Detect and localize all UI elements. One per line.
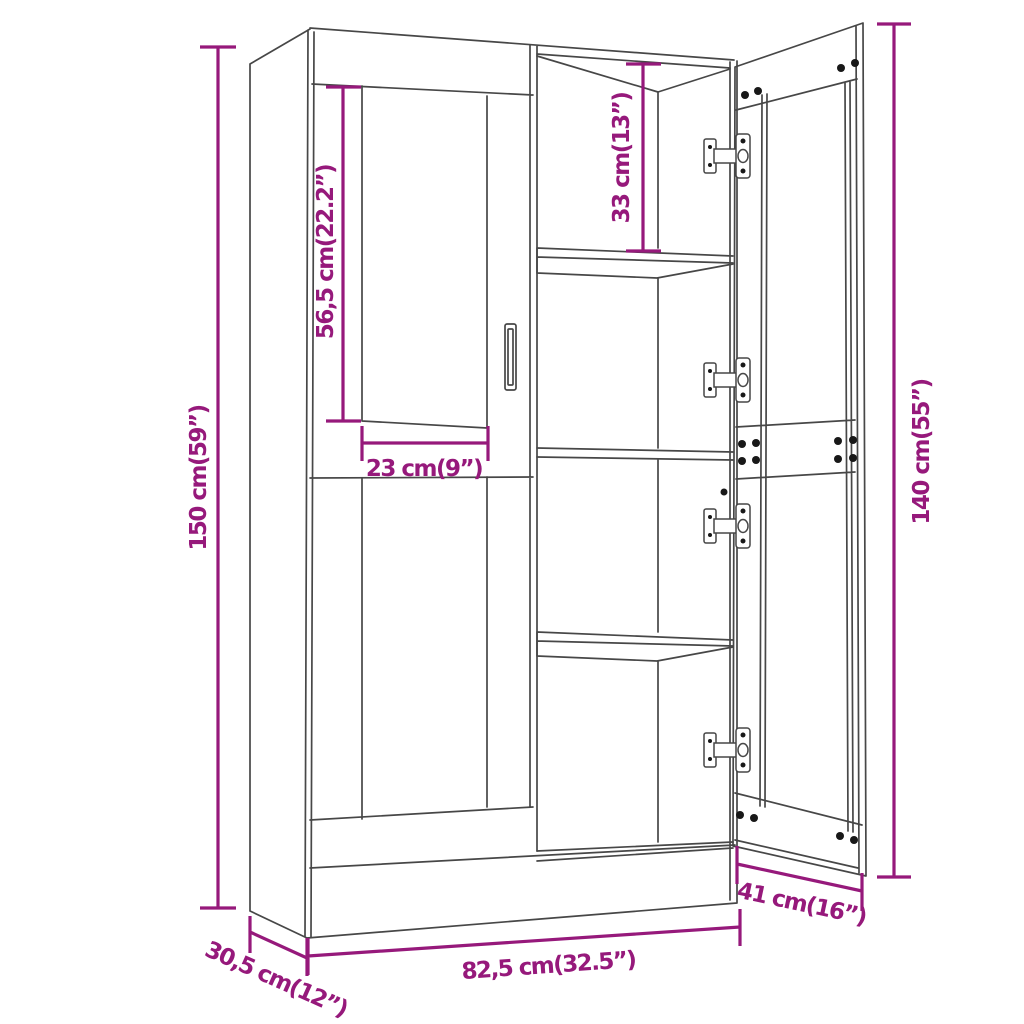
cabinet-body xyxy=(250,28,737,938)
shelf-bottom xyxy=(537,632,733,661)
door-handle xyxy=(505,324,516,390)
mid-rail xyxy=(537,448,733,460)
dimension-label: 33 cm(13”) xyxy=(609,93,635,224)
hinge-icon xyxy=(704,358,750,402)
left-side-panel xyxy=(250,29,314,938)
open-door xyxy=(733,23,866,876)
cabinet-cam-screw xyxy=(721,489,728,496)
dimension-label: 150 cm(59”) xyxy=(186,405,212,550)
cabinet-dimension-drawing: 150 cm(59”) 56,5 cm(22.2”) 33 cm(13”) 23… xyxy=(0,0,1024,1024)
interior-ceiling xyxy=(537,54,730,92)
dimension-label: 140 cm(55”) xyxy=(909,379,935,524)
open-door-frame xyxy=(735,79,862,832)
dimension-label: 30,5 cm(12”) xyxy=(201,937,351,1023)
dimension-door-width: 41 cm(16”) xyxy=(735,846,868,930)
left-door-frame xyxy=(362,86,487,819)
dimension-glass-panel-width: 23 cm(9”) xyxy=(362,426,488,482)
diagram-canvas: 150 cm(59”) 56,5 cm(22.2”) 33 cm(13”) 23… xyxy=(0,0,1024,1024)
dimensions: 150 cm(59”) 56,5 cm(22.2”) 33 cm(13”) 23… xyxy=(186,24,935,1022)
dimension-total-height: 150 cm(59”) xyxy=(186,47,236,908)
interior-floor xyxy=(537,842,733,861)
dimension-total-depth: 30,5 cm(12”) xyxy=(201,916,351,1022)
hinge-icon xyxy=(704,504,750,548)
dimension-label: 82,5 cm(32.5”) xyxy=(461,947,637,985)
dimension-label: 23 cm(9”) xyxy=(366,456,482,482)
dimension-label: 56,5 cm(22.2”) xyxy=(313,165,339,339)
hinge-icon xyxy=(704,728,750,772)
front-frame xyxy=(307,28,737,938)
dimension-top-compartment-height: 33 cm(13”) xyxy=(609,64,661,251)
hinges xyxy=(704,134,750,772)
dimension-glass-panel-height: 56,5 cm(22.2”) xyxy=(313,87,361,421)
door-screws xyxy=(736,59,859,844)
hinge-icon xyxy=(704,134,750,178)
dimension-line xyxy=(877,24,911,877)
dimension-door-height: 140 cm(55”) xyxy=(877,24,935,877)
dimension-label: 41 cm(16”) xyxy=(735,878,868,931)
